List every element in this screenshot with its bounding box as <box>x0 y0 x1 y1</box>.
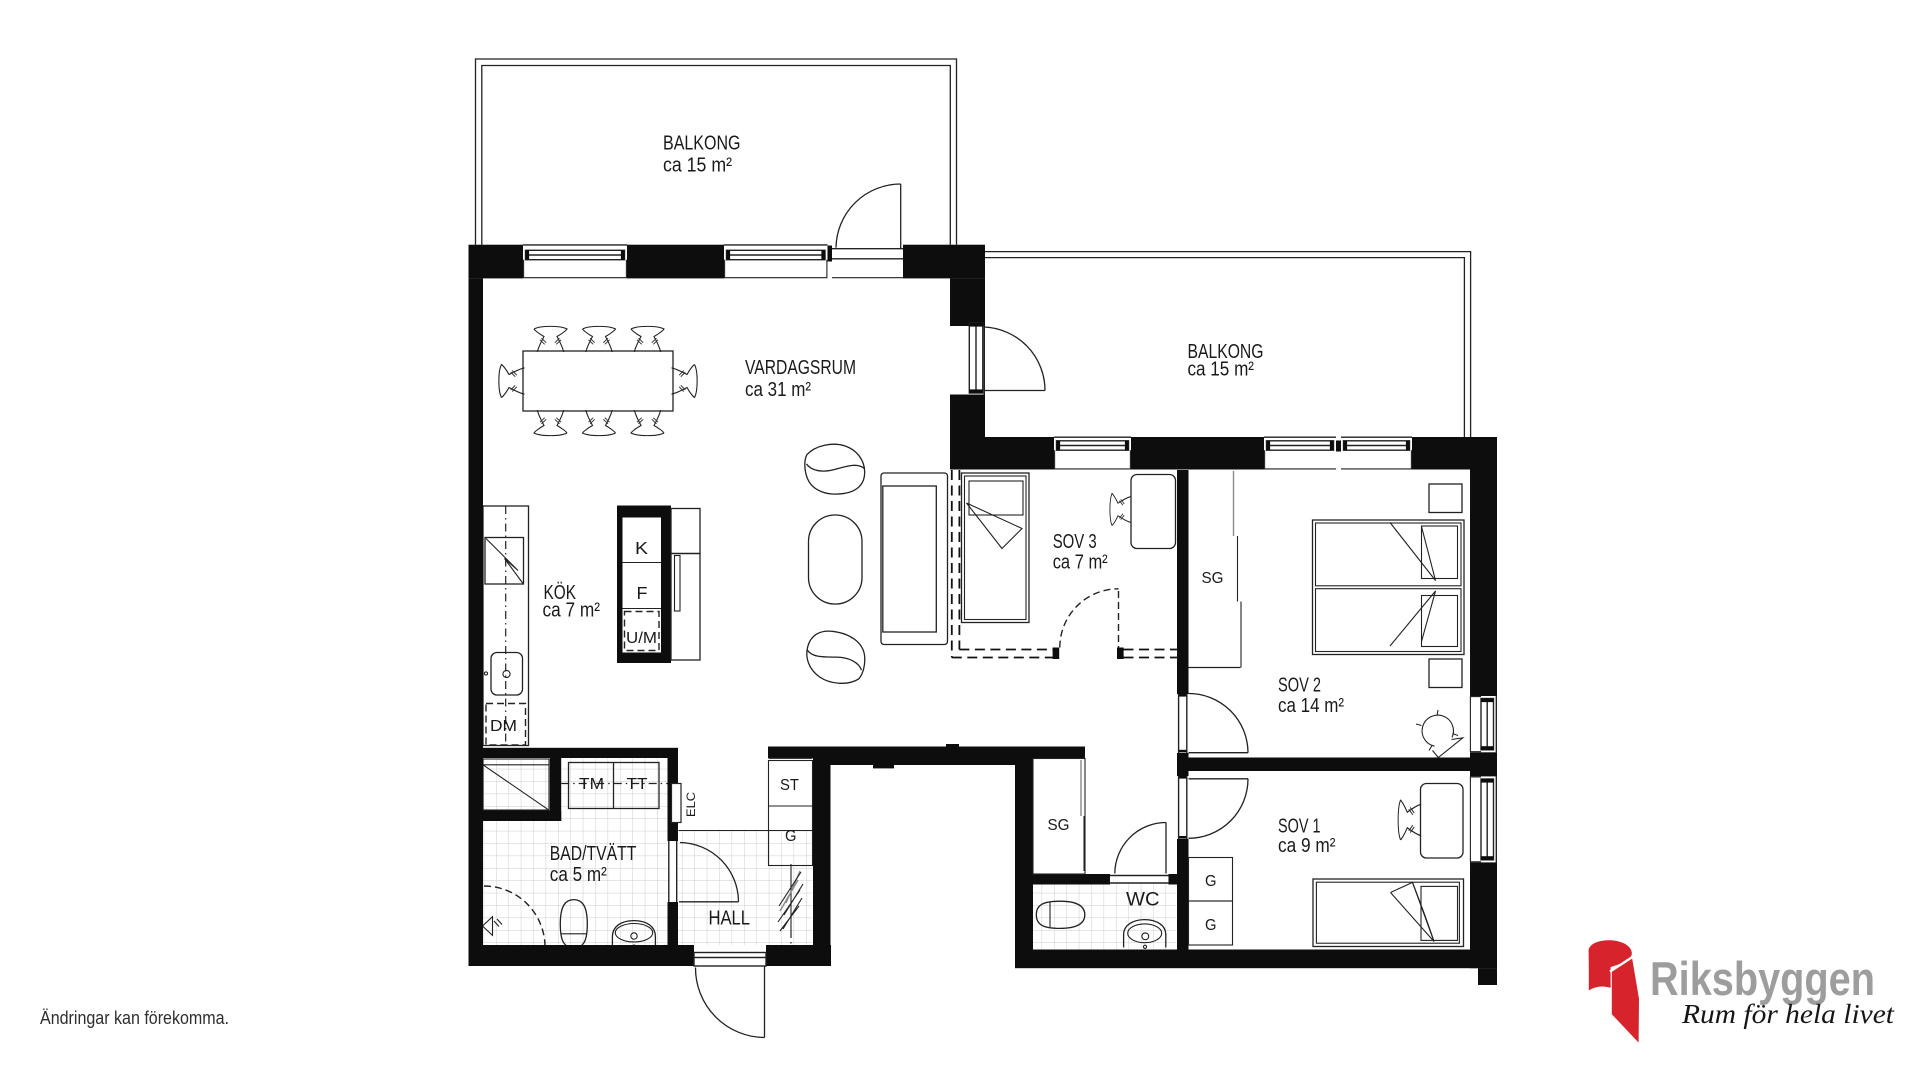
svg-text:ca 5 m²: ca 5 m² <box>550 863 607 886</box>
svg-text:SG: SG <box>1048 817 1070 834</box>
svg-text:ca 31 m²: ca 31 m² <box>745 378 811 401</box>
svg-text:ST: ST <box>780 777 799 794</box>
svg-text:ELC: ELC <box>684 792 698 817</box>
svg-text:ca 7 m²: ca 7 m² <box>543 599 601 622</box>
svg-text:SG: SG <box>1202 570 1224 587</box>
svg-text:G: G <box>1205 873 1217 890</box>
svg-text:ca 9 m²: ca 9 m² <box>1278 834 1336 857</box>
svg-text:Rum för hela livet: Rum för hela livet <box>1681 999 1896 1029</box>
svg-text:TT: TT <box>627 776 648 793</box>
svg-text:DM: DM <box>490 718 517 735</box>
svg-text:ca 15 m²: ca 15 m² <box>1188 358 1255 381</box>
svg-text:BAD/TVÄTT: BAD/TVÄTT <box>550 842 637 865</box>
svg-text:U/M: U/M <box>626 630 657 647</box>
svg-text:ca 7 m²: ca 7 m² <box>1053 551 1108 574</box>
svg-text:VARDAGSRUM: VARDAGSRUM <box>745 356 856 379</box>
svg-text:ca 15 m²: ca 15 m² <box>663 154 732 177</box>
svg-text:WC: WC <box>1126 890 1160 911</box>
svg-text:BALKONG: BALKONG <box>663 132 741 155</box>
svg-text:Ändringar kan förekomma.: Ändringar kan förekomma. <box>40 1008 229 1028</box>
svg-text:F: F <box>637 583 648 603</box>
svg-text:HALL: HALL <box>709 907 751 930</box>
svg-text:TM: TM <box>579 776 604 793</box>
svg-text:ca 14 m²: ca 14 m² <box>1278 694 1344 717</box>
svg-text:G: G <box>785 828 797 845</box>
svg-text:G: G <box>1205 917 1217 934</box>
svg-text:K: K <box>635 538 648 558</box>
svg-text:Riksbyggen: Riksbyggen <box>1650 952 1875 1005</box>
